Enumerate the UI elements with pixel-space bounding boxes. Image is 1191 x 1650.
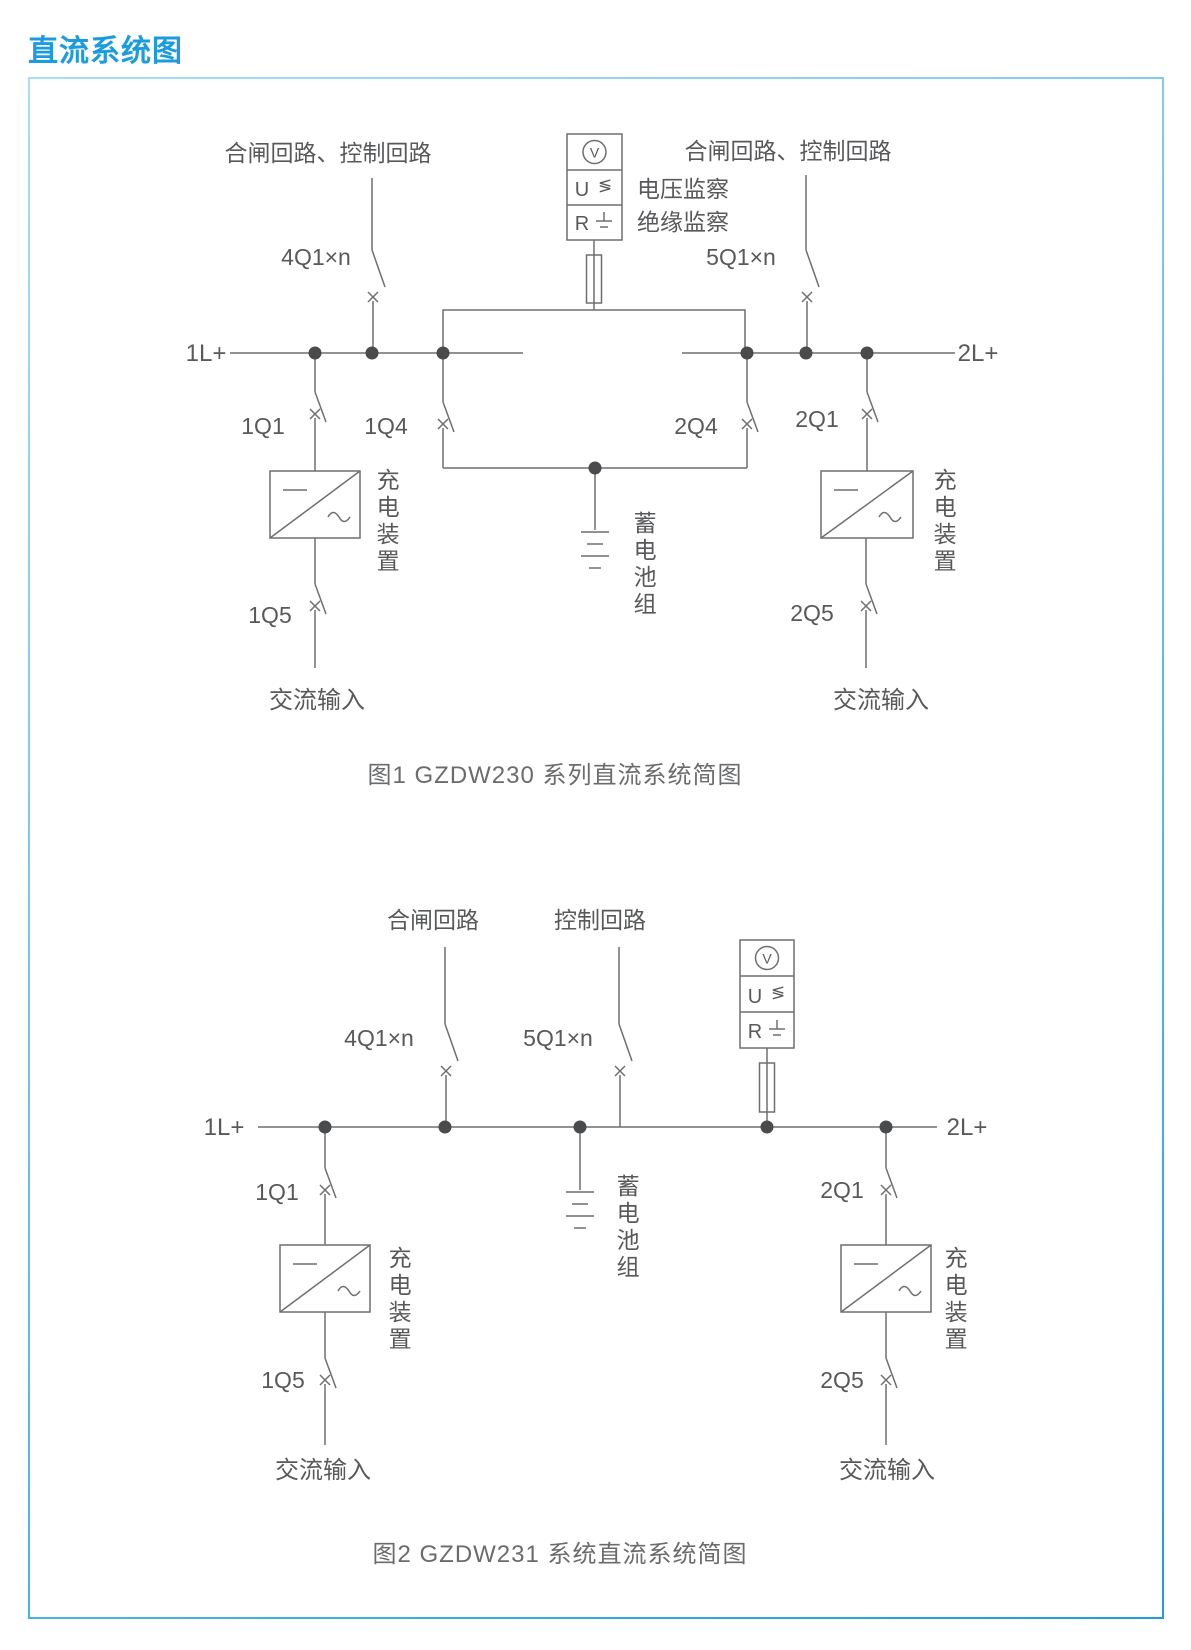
over-under-voltage-icon: ≶ (771, 983, 785, 1002)
fig2-battery-icon (566, 1127, 594, 1228)
fig1-breaker-1q4-icon (438, 353, 454, 468)
fig1-breaker-5q1-icon (802, 175, 819, 353)
fig1-fuse (587, 240, 602, 310)
fig1-feeder-left-label: 4Q1×n (281, 245, 351, 270)
fig1-breaker-label-2q4: 2Q4 (674, 414, 717, 439)
fig2-breaker-2q1-icon (881, 1127, 897, 1245)
fig1-monitor-box: V U ≶ R (567, 134, 622, 240)
fig1-voltage-monitor-label: 电压监察 (637, 177, 729, 202)
fig1-breaker-1q1-icon (310, 353, 326, 471)
fig2-breaker-label-2q5: 2Q5 (820, 1368, 863, 1393)
insulation-relay-letter: R (575, 213, 589, 235)
fig2-breaker-2q5-icon (881, 1312, 897, 1445)
ac-wave-icon (899, 1287, 921, 1296)
fig1-ac-input-left-label: 交流输入 (269, 688, 365, 714)
fig2-breaker-label-1q1: 1Q1 (255, 1180, 298, 1205)
fig1-charger-left-box (270, 471, 360, 538)
fig1-bus-label-2l: 2L+ (958, 341, 999, 367)
fig1-caption: 图1 GZDW230 系列直流系统简图 (367, 755, 742, 790)
fig1-charger-right-box (821, 471, 913, 538)
fig1-breaker-label-1q5: 1Q5 (248, 603, 291, 628)
fig1-junction-dots (309, 347, 874, 475)
ac-wave-icon (338, 1287, 360, 1296)
fig1-charger-right-label: 充电装置 (931, 468, 955, 576)
fig1-breaker-1q5-icon (310, 538, 326, 668)
fig1-breaker-label-1q4: 1Q4 (364, 414, 407, 439)
fig2-monitor-box: V U ≶ R (740, 940, 794, 1048)
fig2-feeder-left-label: 4Q1×n (344, 1026, 414, 1051)
fig2-battery-label: 蓄电池组 (614, 1174, 638, 1282)
fig1-breaker-label-1q1: 1Q1 (241, 414, 284, 439)
ac-wave-icon (328, 513, 350, 522)
earth-icon (596, 212, 612, 227)
fig2-fuse (760, 1048, 775, 1127)
earth-icon (769, 1020, 785, 1035)
fig1-breaker-label-2q1: 2Q1 (795, 407, 838, 432)
fig1-breaker-2q4-icon (742, 353, 758, 468)
fig1-breaker-4q1-icon (368, 178, 385, 353)
fig1-breaker-label-2q5: 2Q5 (790, 601, 833, 626)
fig2-breaker-1q1-icon (320, 1127, 336, 1245)
voltmeter-letter: V (590, 145, 600, 161)
fig1-ac-input-right-label: 交流输入 (833, 688, 929, 714)
fig2-breaker-1q5-icon (320, 1312, 336, 1445)
fig2-breaker-label-2q1: 2Q1 (820, 1178, 863, 1203)
fig2-breaker-label-1q5: 1Q5 (261, 1368, 304, 1393)
fig2-bus-label-1l: 1L+ (204, 1115, 245, 1141)
fig2-breaker-5q1-icon (615, 947, 632, 1127)
over-under-voltage-icon: ≶ (598, 176, 612, 195)
fig2-charger-right-box (841, 1245, 931, 1312)
voltmeter-letter: V (762, 951, 772, 967)
fig1-battery-icon (581, 468, 609, 568)
fig1-battery-label: 蓄电池组 (631, 511, 655, 619)
fig1-insulation-monitor-label: 绝缘监察 (637, 210, 729, 235)
fig1-breaker-2q5-icon (861, 538, 877, 668)
fig2-charger-right-label: 充电装置 (942, 1246, 966, 1354)
circuit-diagram-canvas: V U ≶ R (0, 0, 1191, 1650)
fig2-breaker-4q1-icon (441, 947, 458, 1127)
fig1-charger-left-label: 充电装置 (374, 468, 398, 576)
fig2-bus-label-2l: 2L+ (947, 1115, 988, 1141)
fig2-feeder-right-label: 5Q1×n (523, 1026, 593, 1051)
fig1-breaker-2q1-icon (862, 353, 878, 471)
insulation-relay-letter: R (748, 1021, 762, 1043)
fig2-ac-input-left-label: 交流输入 (275, 1458, 371, 1484)
fig1-bus-label-1l: 1L+ (186, 341, 227, 367)
fig1-top-label-left: 合闸回路、控制回路 (225, 141, 432, 166)
fig1-feeder-right-label: 5Q1×n (706, 245, 776, 270)
fig2-ac-input-right-label: 交流输入 (839, 1458, 935, 1484)
fig1-top-label-right: 合闸回路、控制回路 (685, 139, 892, 164)
fig2-caption: 图2 GZDW231 系统直流系统简图 (372, 1534, 747, 1569)
page: 直流系统图 V U ≶ R (0, 0, 1191, 1650)
fig2-charger-left-label: 充电装置 (386, 1246, 410, 1354)
ac-wave-icon (879, 513, 901, 522)
fig1-circuit: V U ≶ R (230, 134, 955, 668)
fig2-top-label-left: 合闸回路 (387, 908, 479, 933)
fig1-bus-tie-bridge (443, 310, 745, 353)
voltage-relay-letter: U (748, 986, 762, 1008)
fig2-top-label-right: 控制回路 (554, 908, 646, 933)
fig2-charger-left-box (280, 1245, 370, 1312)
voltage-relay-letter: U (575, 179, 589, 201)
